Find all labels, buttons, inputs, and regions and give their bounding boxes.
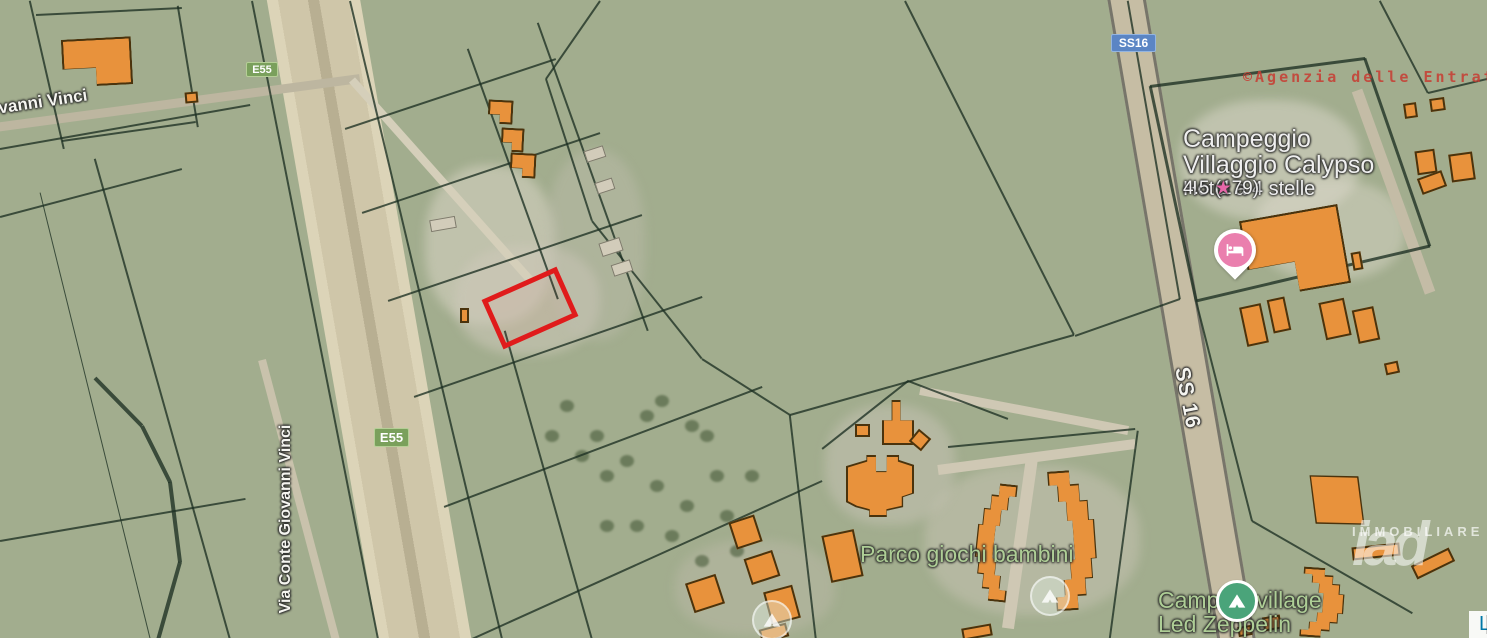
building [855,424,870,437]
camping-poi-circle[interactable] [1216,580,1258,622]
poi-rating-row: 4.5 ★ (179) [1183,179,1259,199]
building [1352,306,1381,344]
star-icon: ★ [1215,179,1232,199]
building [1414,149,1437,176]
bed-icon [1218,233,1252,267]
parcel-boundary-line [156,561,182,638]
park-faded-circle-2 [752,600,792,638]
parcel-boundary-line [177,6,198,127]
building [460,308,469,323]
building [1239,303,1269,347]
poi-campeggio-villaggio-calypso: Campeggio Villaggio Calypso 4.5 ★ (179) … [1183,126,1374,200]
tree [650,480,664,492]
tree [745,470,759,482]
parcel-boundary-line [0,498,245,541]
map-attribution: Leaflet | Map data [1469,611,1487,638]
building [1318,298,1351,341]
parcel-boundary-line [36,7,182,15]
tree [600,520,614,532]
tree [560,400,574,412]
tree [655,395,669,407]
parcel-boundary-line [790,334,1075,416]
poi-name-line2: Villaggio Calypso [1183,152,1374,178]
building [1403,102,1418,119]
parcel-boundary-line [168,482,182,562]
building [961,623,993,638]
parcel-boundary-line [444,386,763,507]
tent-icon [1040,586,1060,606]
building [1384,361,1400,376]
parcel-boundary-line [94,377,144,428]
road [919,386,1129,435]
building [1267,297,1292,334]
route-shield-e55-top: E55 [246,62,278,77]
tree [680,500,694,512]
road-label-via-conte-giovanni-vinci: Via Conte Giovanni Vinci [277,354,295,638]
map-canvas[interactable]: Giovanni Vinci Via Conte Giovanni Vinci … [0,0,1487,638]
tree [620,455,634,467]
parcel-boundary-line [701,358,790,416]
tree [545,430,559,442]
building [1448,151,1476,182]
tree [710,470,724,482]
parcel-boundary-line [140,425,172,483]
building [185,91,199,103]
tree [600,470,614,482]
parcel-boundary-line [904,1,1075,336]
rating-value: 4.5 [1183,178,1209,199]
park-faded-circle [1030,576,1070,616]
building [1429,97,1446,112]
iad-subtitle: IMMOBILIARE [1352,524,1483,539]
parcel-boundary-line [545,0,601,79]
tree [695,555,709,567]
tent-icon [1227,591,1247,611]
tree [590,430,604,442]
agenzia-entrate-watermark: ©Agenzia delle Entrate [1243,68,1487,86]
tree [700,430,714,442]
tree [630,520,644,532]
building [487,99,513,124]
poi-name-line1: Campeggio [1183,126,1374,152]
parcel-boundary-line [504,331,592,638]
building [61,36,133,88]
route-shield-ss16: SS16 [1111,34,1156,52]
poi-parco-giochi: Parco giochi bambini [860,542,1074,566]
tent-icon [762,610,782,630]
tree [665,530,679,542]
route-shield-e55-mid: E55 [374,428,409,447]
tree [685,420,699,432]
tree [640,410,654,422]
parcel-boundary-line [0,168,182,217]
parcel-boundary-line [62,121,196,141]
